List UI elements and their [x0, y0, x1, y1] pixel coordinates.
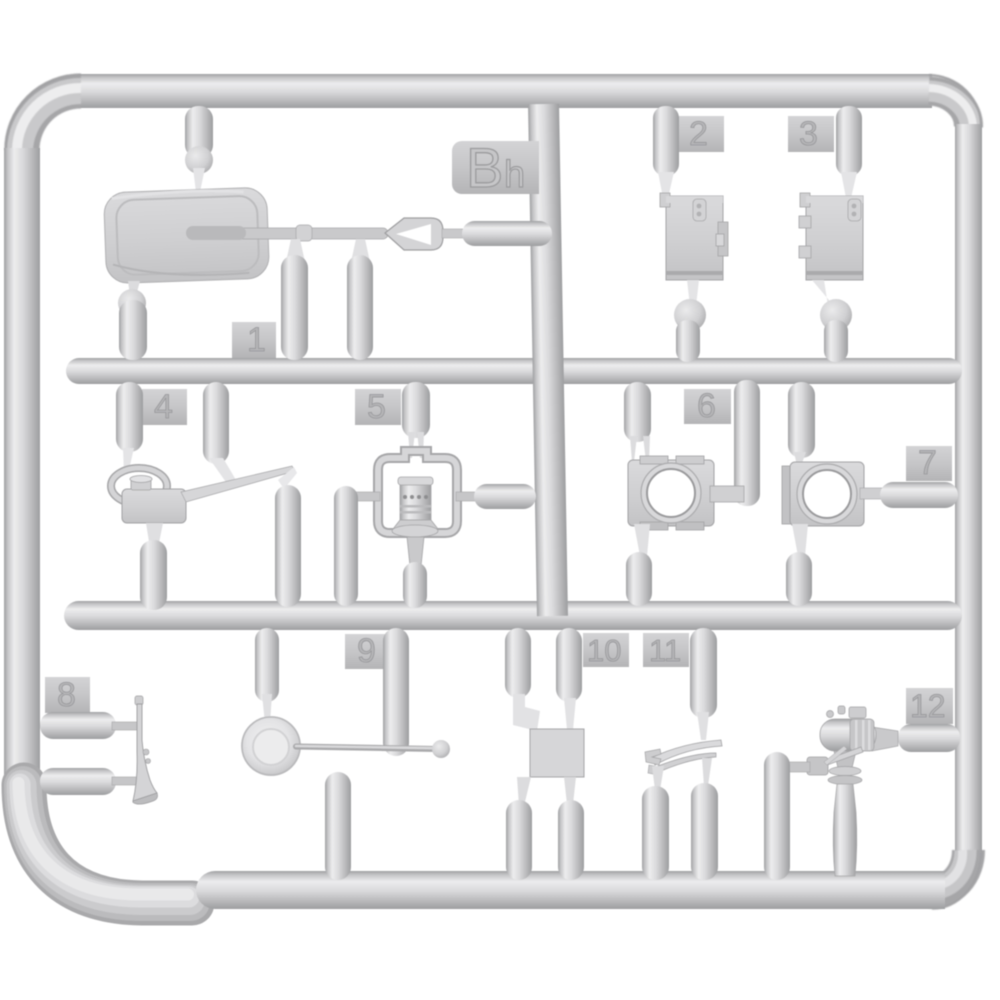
svg-text:7: 7: [918, 444, 937, 482]
svg-text:2: 2: [689, 115, 708, 153]
svg-text:11: 11: [649, 633, 681, 668]
svg-text:1: 1: [247, 321, 266, 359]
svg-text:B: B: [466, 136, 503, 199]
svg-text:5: 5: [367, 388, 386, 426]
svg-text:8: 8: [57, 676, 76, 714]
svg-text:9: 9: [357, 632, 376, 670]
svg-text:12: 12: [910, 688, 946, 724]
svg-text:4: 4: [154, 388, 173, 426]
svg-text:10: 10: [587, 633, 621, 668]
svg-text:h: h: [504, 154, 525, 196]
svg-text:3: 3: [799, 115, 818, 153]
svg-text:6: 6: [697, 387, 716, 425]
